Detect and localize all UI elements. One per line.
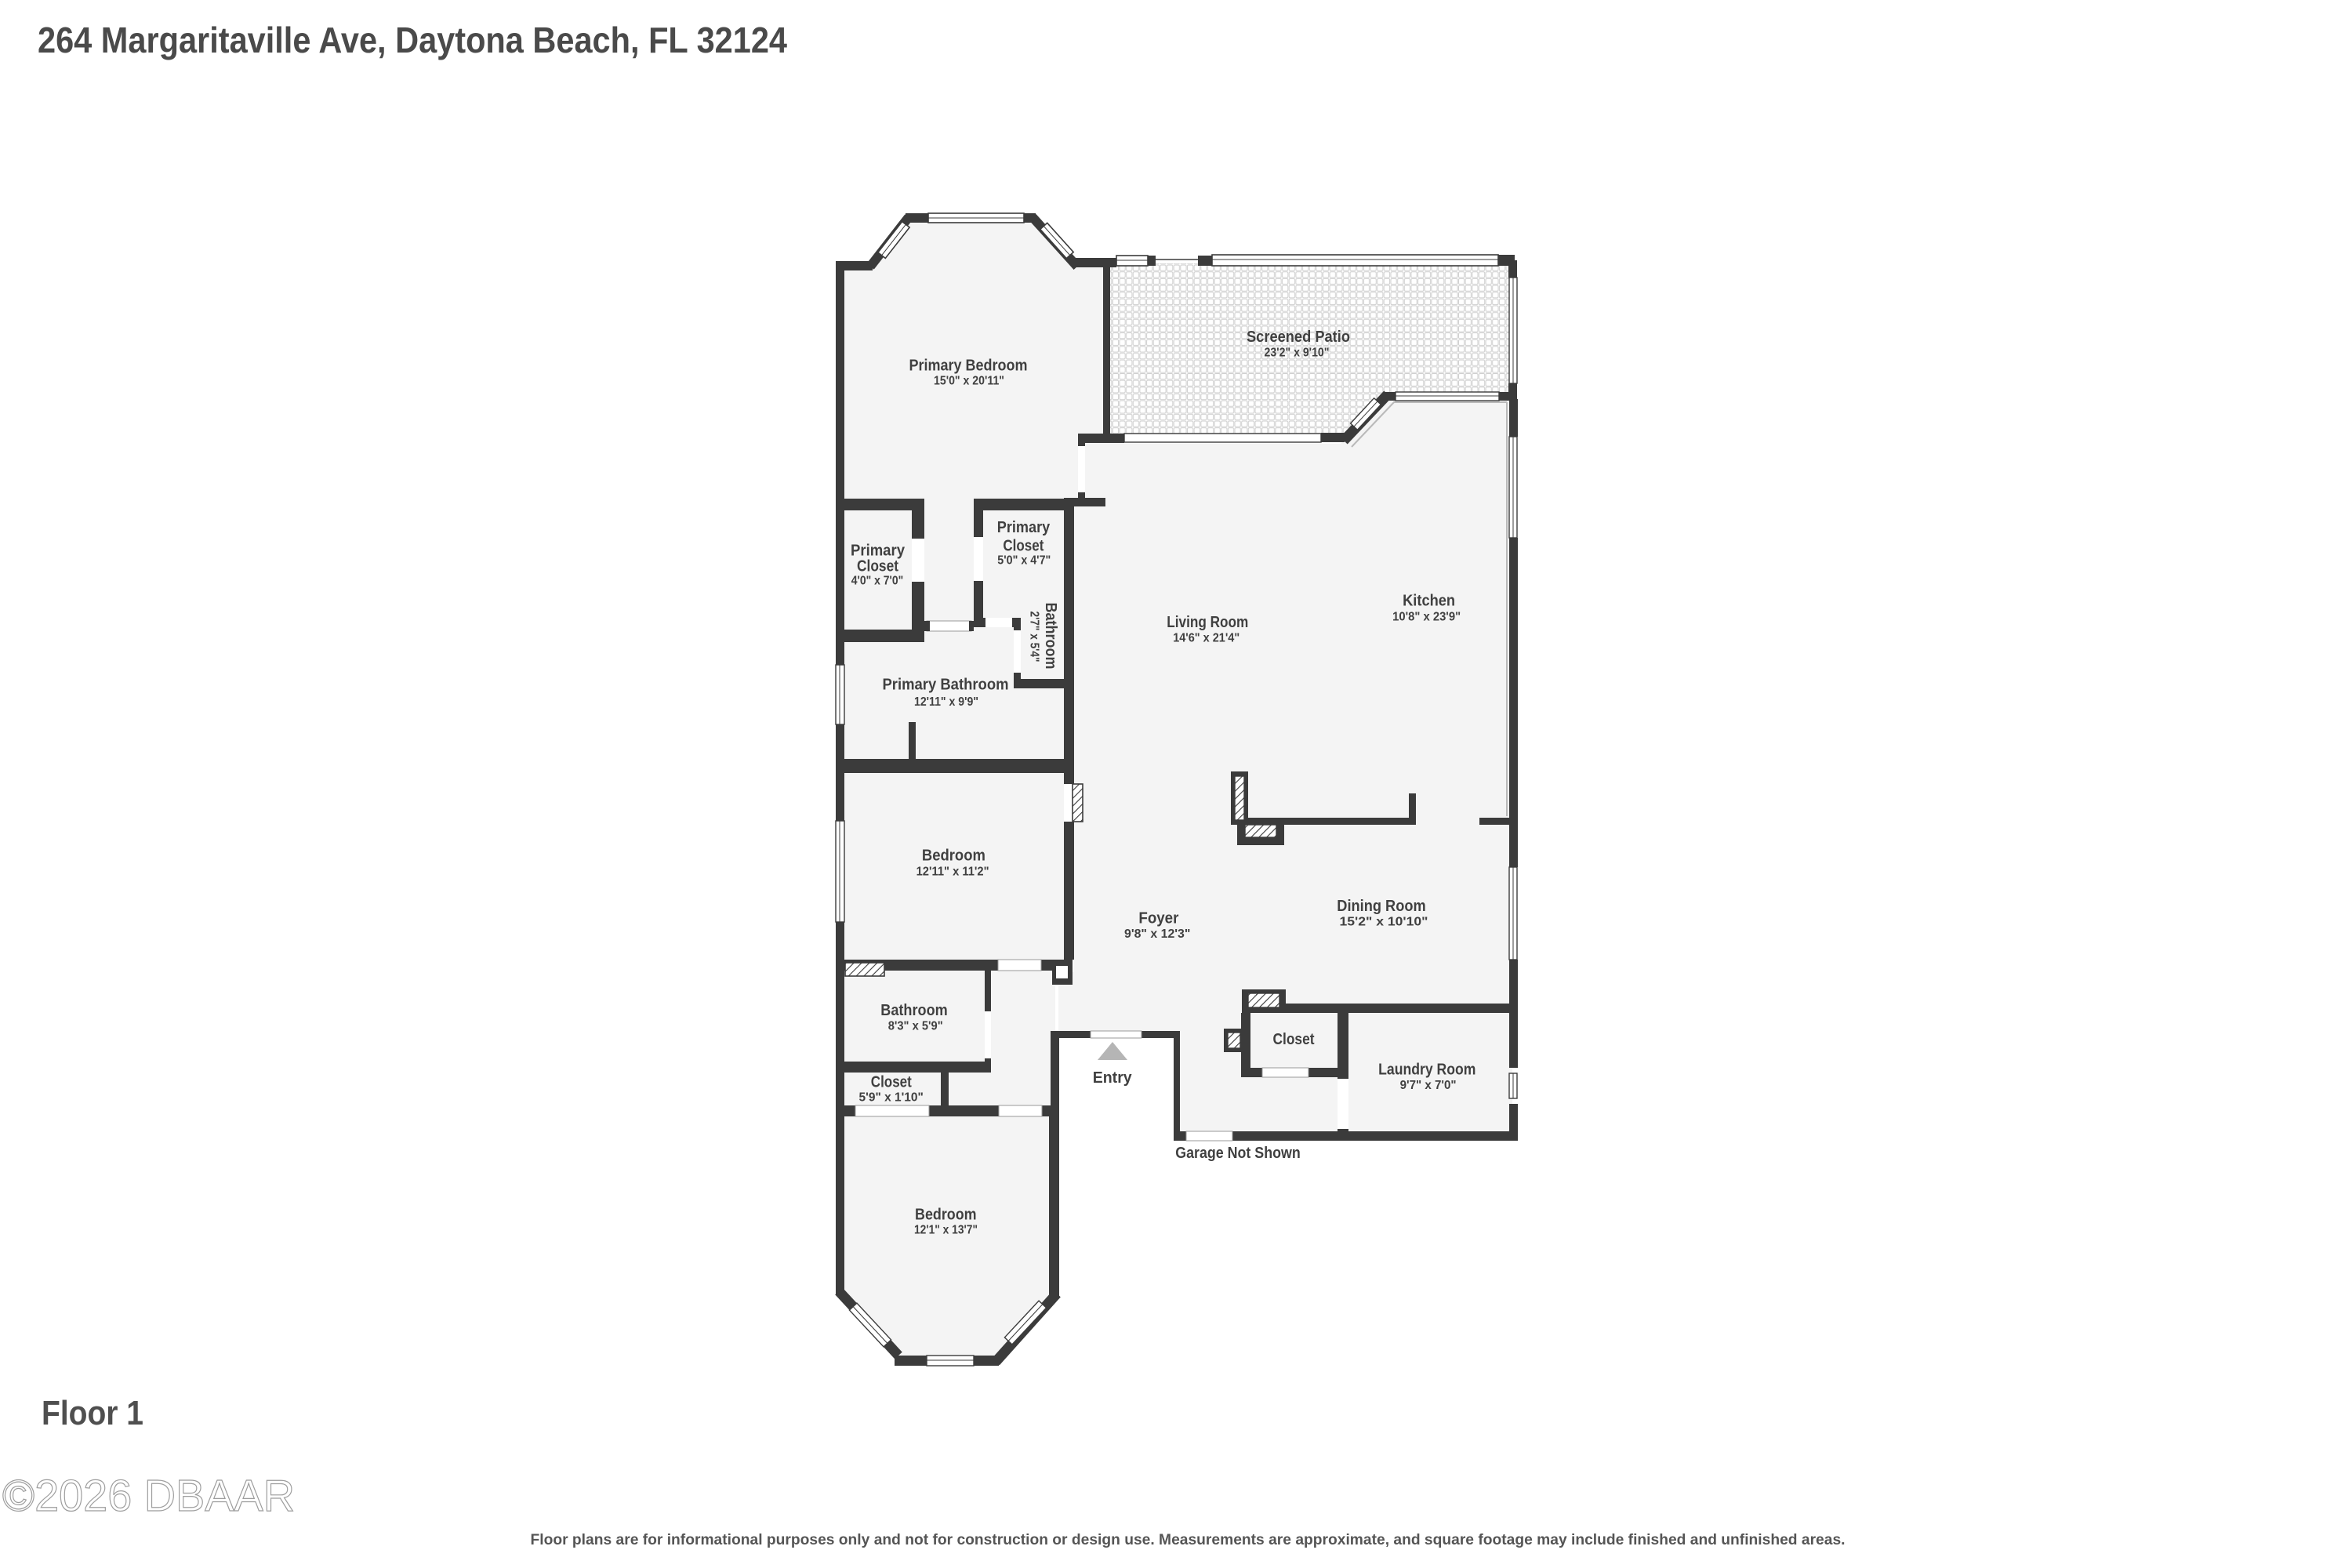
svg-text:264 Margaritaville Ave, Dayton: 264 Margaritaville Ave, Daytona Beach, F… xyxy=(38,20,787,60)
svg-text:Closet: Closet xyxy=(857,557,898,575)
svg-text:Entry: Entry xyxy=(1093,1069,1133,1087)
svg-text:Screened Patio: Screened Patio xyxy=(1247,328,1350,346)
svg-text:Living Room: Living Room xyxy=(1167,613,1248,631)
svg-text:Closet: Closet xyxy=(871,1073,912,1091)
svg-text:5'9" x 1'10": 5'9" x 1'10" xyxy=(859,1091,924,1105)
svg-text:Floor plans are for informatio: Floor plans are for informational purpos… xyxy=(531,1531,1846,1548)
svg-text:2'7" x 5'4": 2'7" x 5'4" xyxy=(1028,612,1041,662)
svg-text:15'2" x 10'10": 15'2" x 10'10" xyxy=(1340,916,1428,929)
svg-text:Kitchen: Kitchen xyxy=(1403,592,1455,610)
svg-text:Bathroom: Bathroom xyxy=(880,1001,947,1019)
svg-text:Bathroom: Bathroom xyxy=(1042,603,1060,670)
svg-text:4'0" x 7'0": 4'0" x 7'0" xyxy=(851,575,904,588)
svg-text:5'0" x 4'7": 5'0" x 4'7" xyxy=(997,554,1051,568)
svg-text:Primary Bedroom: Primary Bedroom xyxy=(909,357,1028,375)
svg-text:10'8" x 23'9": 10'8" x 23'9" xyxy=(1392,611,1461,624)
svg-text:Bedroom: Bedroom xyxy=(922,847,985,865)
svg-text:9'8" x 12'3": 9'8" x 12'3" xyxy=(1124,927,1190,941)
svg-text:23'2" x 9'10": 23'2" x 9'10" xyxy=(1265,347,1330,360)
svg-text:Bedroom: Bedroom xyxy=(915,1206,977,1224)
svg-text:©2026 DBAAR: ©2026 DBAAR xyxy=(2,1471,295,1521)
svg-text:Primary: Primary xyxy=(997,518,1051,536)
svg-text:12'11" x 11'2": 12'11" x 11'2" xyxy=(916,866,989,879)
svg-text:Dining Room: Dining Room xyxy=(1337,897,1425,915)
svg-text:Closet: Closet xyxy=(1003,537,1044,555)
svg-text:8'3" x 5'9": 8'3" x 5'9" xyxy=(888,1020,943,1033)
svg-text:9'7" x 7'0": 9'7" x 7'0" xyxy=(1400,1079,1457,1092)
svg-text:Garage Not Shown: Garage Not Shown xyxy=(1175,1144,1301,1162)
svg-text:12'11" x 9'9": 12'11" x 9'9" xyxy=(914,695,978,709)
svg-text:Primary Bathroom: Primary Bathroom xyxy=(883,676,1009,694)
svg-text:Closet: Closet xyxy=(1273,1030,1315,1048)
svg-text:Laundry Room: Laundry Room xyxy=(1378,1061,1475,1079)
svg-text:12'1" x 13'7": 12'1" x 13'7" xyxy=(914,1224,978,1237)
svg-text:Floor 1: Floor 1 xyxy=(42,1394,143,1432)
svg-text:Foyer: Foyer xyxy=(1138,909,1178,927)
svg-text:15'0" x 20'11": 15'0" x 20'11" xyxy=(934,375,1004,388)
svg-text:14'6" x 21'4": 14'6" x 21'4" xyxy=(1173,632,1240,645)
